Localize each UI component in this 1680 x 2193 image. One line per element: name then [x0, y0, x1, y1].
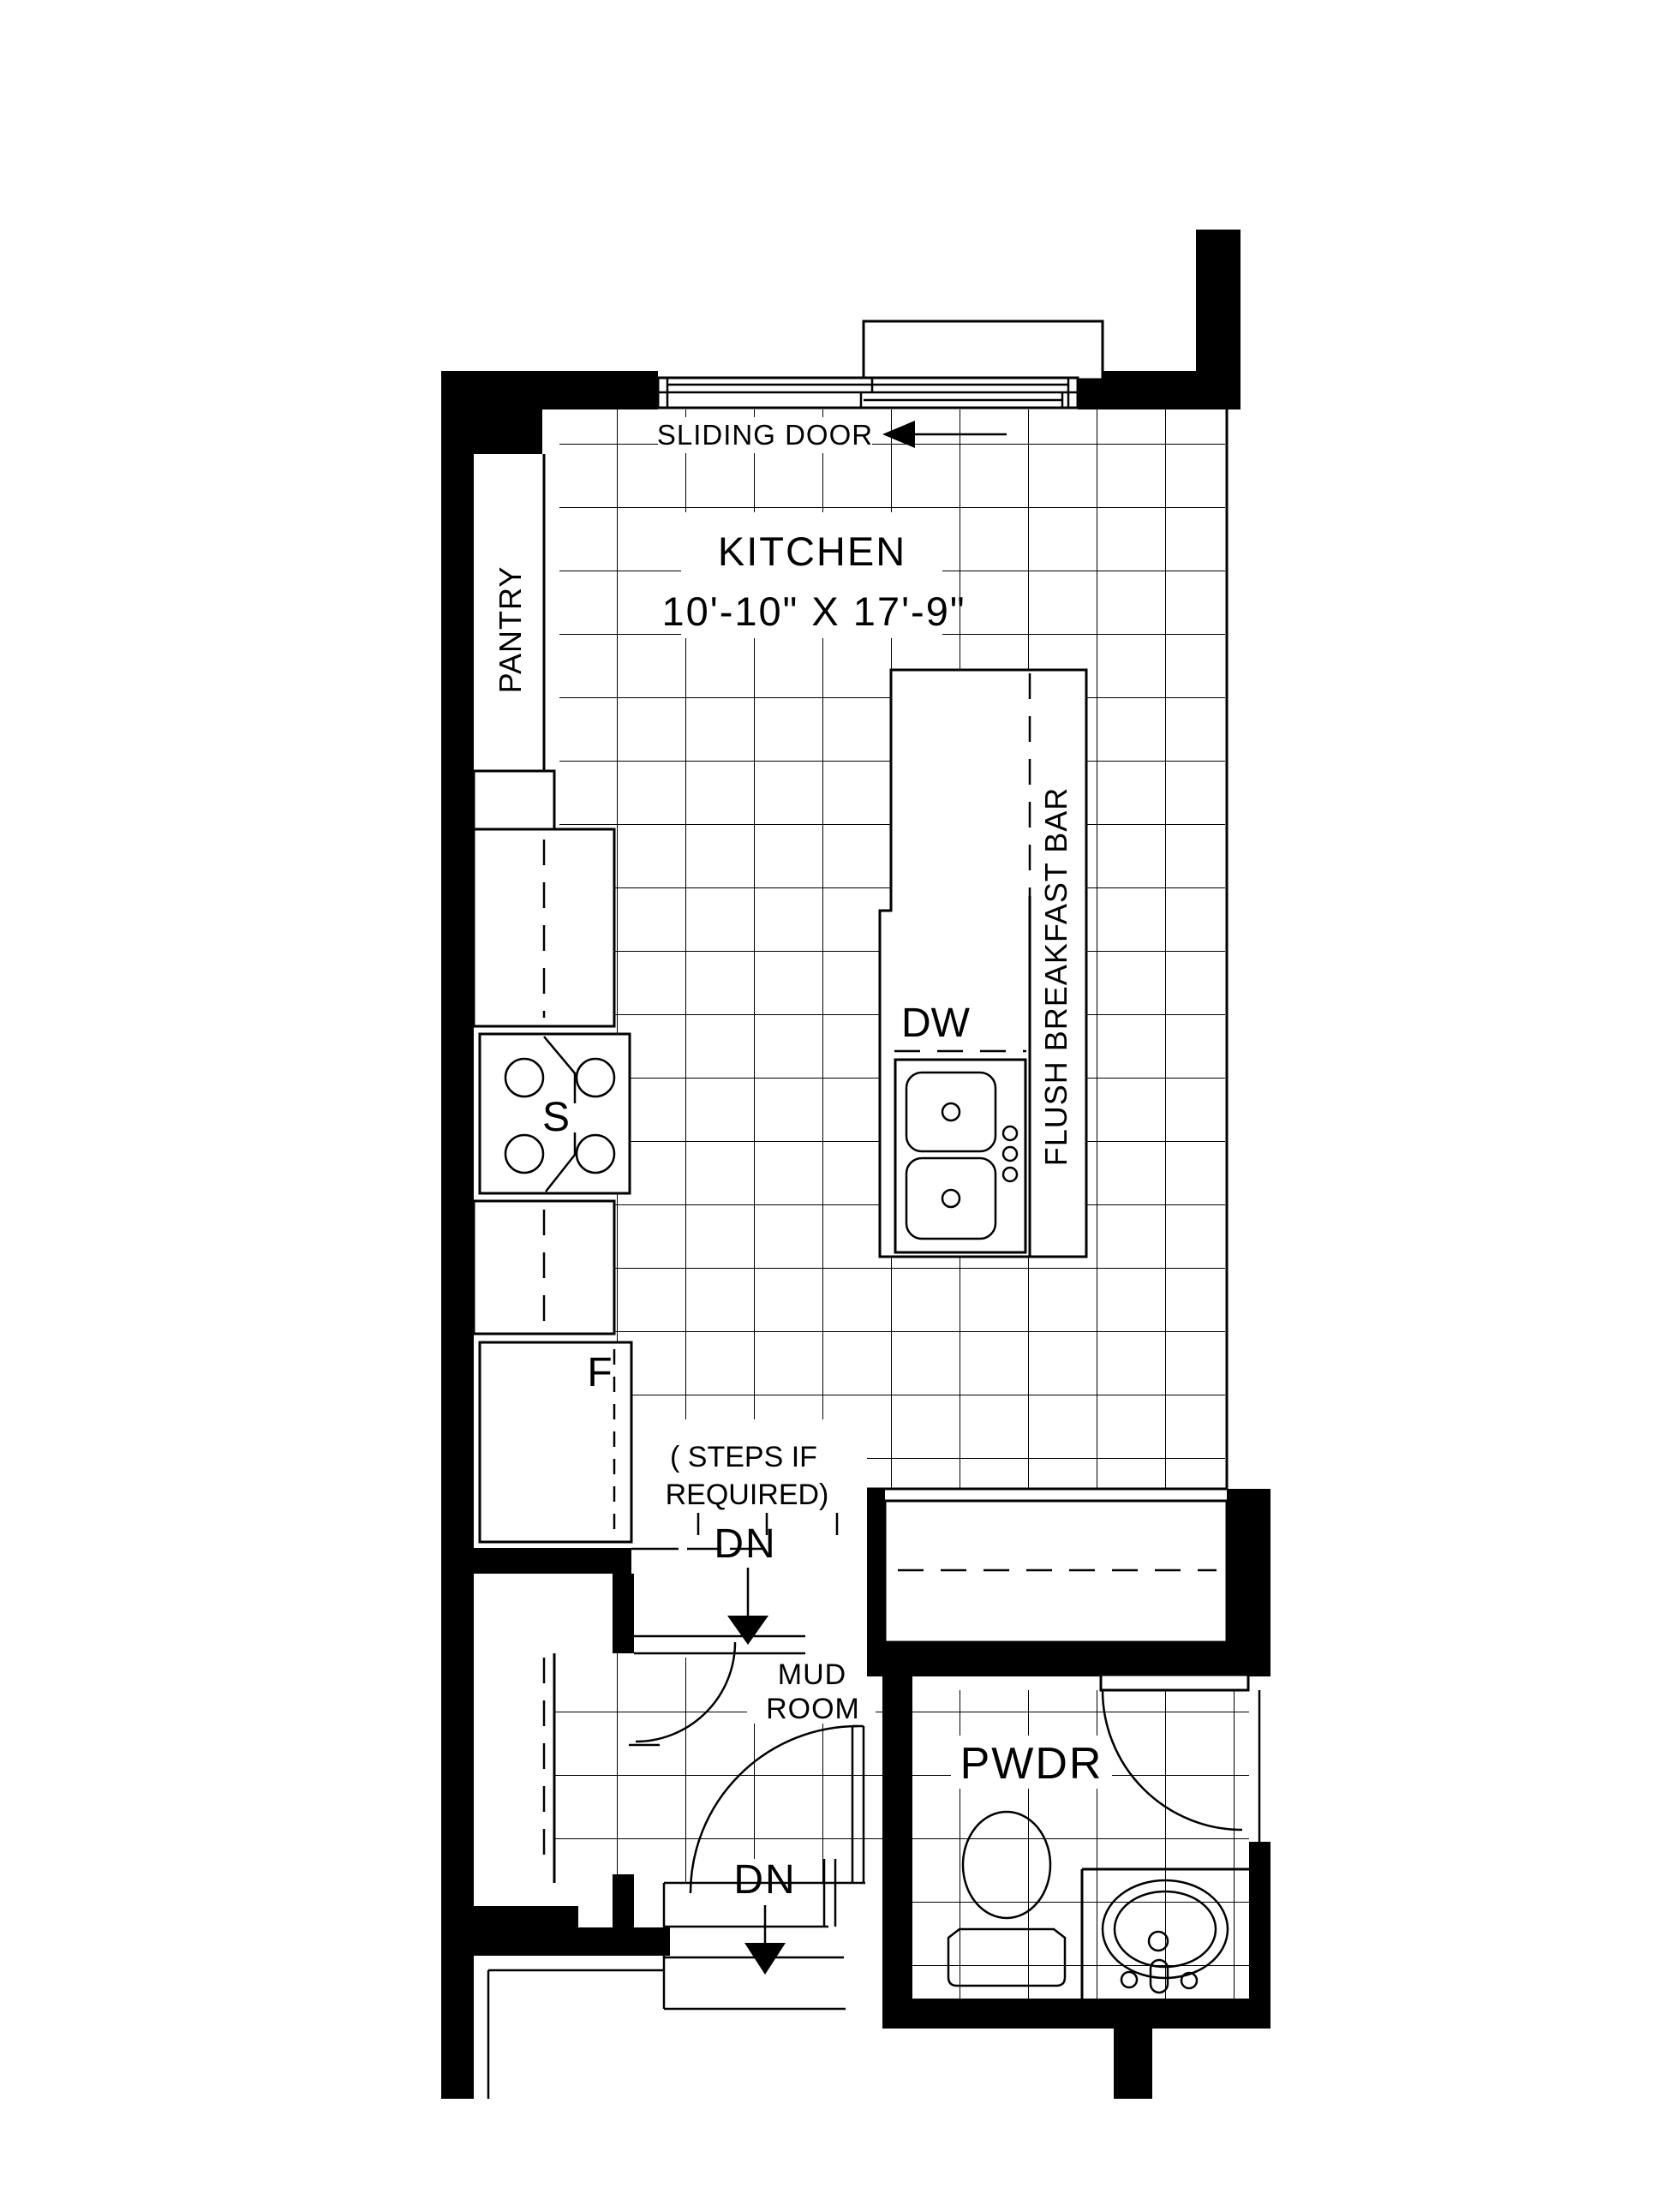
wall-pwdr-right: [1249, 1842, 1270, 1999]
counter-segment: [474, 771, 554, 829]
stove-label: S: [542, 1095, 570, 1140]
pantry-area: PANTRY: [474, 454, 554, 771]
fridge: F: [480, 1342, 631, 1542]
wall-bottom-stub: [1114, 2029, 1152, 2099]
floor-plan-page: PANTRY S F DW: [0, 0, 1680, 2193]
floor-plan-drawing: PANTRY S F DW: [0, 0, 1680, 2193]
wall-mud-stub: [613, 1874, 634, 1927]
sliding-door-label: SLIDING DOOR: [657, 419, 873, 451]
mud-room-label-line1: MUD: [778, 1658, 846, 1691]
pwdr-door-leaf: [1101, 1675, 1248, 1690]
fridge-label: F: [587, 1350, 612, 1395]
sliding-door-assembly: [658, 378, 1078, 408]
wall-closet-left-jamb: [867, 1489, 885, 1659]
kitchen-dims: 10'-10" X 17'-9": [661, 589, 966, 634]
steps-note-line2: REQUIRED): [666, 1479, 829, 1511]
wall-mud-bottom-2: [578, 1927, 670, 1956]
wall-pwdr-left: [882, 1660, 912, 1999]
kitchen-closet: [885, 1501, 1227, 1642]
kitchen-island: DW FLUSH BREAKFAST BAR: [880, 670, 1086, 1257]
wall-mud-bottom-1: [474, 1906, 578, 1956]
exterior-stoop-outline: [488, 1970, 664, 2099]
breakfast-bar-label: FLUSH BREAKFAST BAR: [1038, 787, 1073, 1166]
wall-pwdr-top: [867, 1642, 1270, 1676]
double-sink: [895, 1060, 1025, 1252]
wall-below-fridge: [474, 1548, 631, 1574]
steps-note-line1: ( STEPS IF: [670, 1441, 817, 1473]
wall-top-left-segment: [441, 371, 658, 409]
stove: S: [480, 1034, 630, 1193]
dishwasher-label: DW: [901, 1001, 971, 1046]
dn-kitchen-label: DN: [714, 1521, 776, 1567]
wall-pwdr-bottom: [882, 1999, 1270, 2029]
powder-room-label: PWDR: [960, 1739, 1103, 1789]
kitchen-name: KITCHEN: [718, 529, 906, 574]
dn-mud-label: DN: [733, 1857, 796, 1903]
mud-room-label-line2: ROOM: [766, 1693, 860, 1725]
deck-stoop: [864, 321, 1103, 379]
wall-chimney-block: [1196, 230, 1241, 371]
kitchen-title: KITCHEN 10'-10" X 17'-9": [661, 512, 966, 638]
down-arrow-icon: [744, 1943, 786, 1975]
wall-left: [441, 371, 474, 2099]
wall-steps-left-stub: [613, 1574, 634, 1653]
steps-area: ( STEPS IF REQUIRED) DN: [631, 1419, 865, 1658]
pantry-label: PANTRY: [493, 566, 528, 694]
